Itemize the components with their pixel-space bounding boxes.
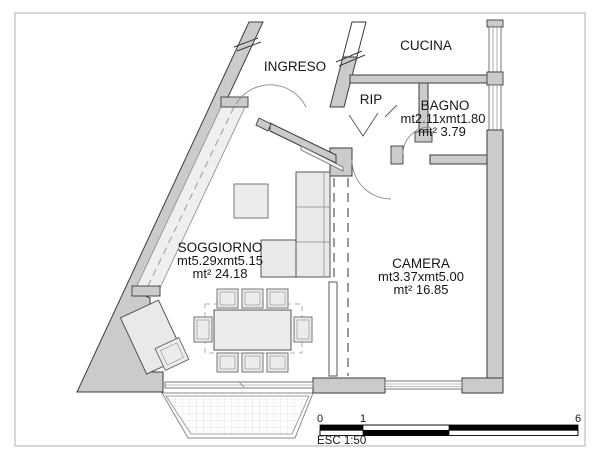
bagno-camera-wall	[430, 155, 487, 164]
rip-label: RIP	[360, 92, 383, 107]
bottom-right-corner-wall	[462, 378, 503, 393]
scale-segment	[449, 430, 578, 435]
floor-plan-drawing: INGRESO CUCINA RIP BAGNO mt2.11xmt1.80 m…	[0, 0, 600, 460]
cucina-window	[489, 27, 501, 72]
right-wall-top-cap	[487, 20, 503, 27]
scale-segment	[363, 425, 449, 430]
scale-tick-1: 1	[360, 413, 366, 425]
bagno-window	[489, 85, 501, 130]
bottom-wall-block-center	[313, 378, 385, 393]
window-jamb-top	[221, 97, 248, 107]
window-jamb-bottom	[132, 286, 160, 296]
right-wall-block	[487, 72, 503, 85]
sofa	[296, 172, 330, 277]
ingreso-label: INGRESO	[264, 59, 326, 74]
cucina-bottom-wall	[350, 75, 489, 83]
soggiorno-area: mt² 24.18	[193, 266, 248, 281]
floor-plan-page: INGRESO CUCINA RIP BAGNO mt2.11xmt1.80 m…	[0, 0, 600, 460]
right-exterior-wall	[487, 130, 503, 378]
soggiorno-camera-low-partition	[329, 282, 337, 376]
sofa-chaise	[261, 240, 296, 277]
dining-table	[214, 310, 291, 350]
balcony	[162, 393, 313, 438]
balcony-floor-hatch	[166, 396, 309, 434]
camera-window	[385, 381, 462, 389]
scale-tick-0: 0	[317, 413, 323, 425]
coffee-table	[234, 184, 268, 218]
bagno-area: mt² 3.79	[418, 124, 466, 139]
scale-segment	[449, 425, 578, 430]
camera-area: mt² 16.85	[394, 282, 449, 297]
scale-segment	[363, 430, 449, 435]
cucina-label: CUCINA	[400, 38, 452, 53]
scale-tick-6: 6	[575, 413, 581, 425]
scale-segment	[320, 425, 363, 430]
scale-label: ESC 1:50	[317, 435, 366, 447]
bagno-door-jamb	[391, 146, 403, 164]
